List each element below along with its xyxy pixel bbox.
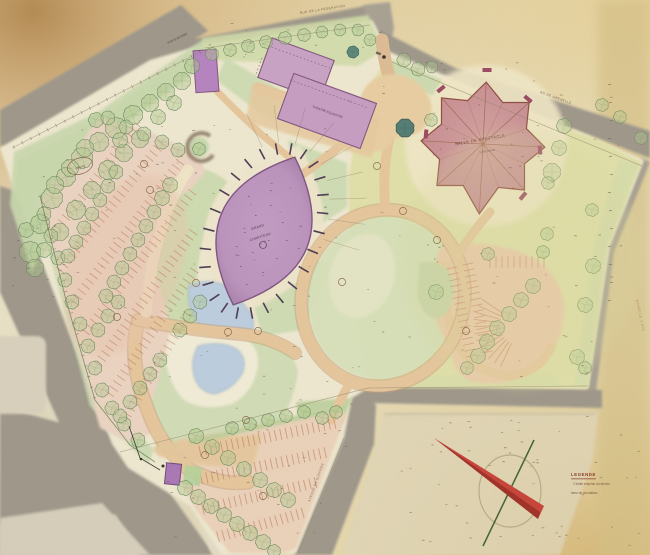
svg-text:sens de circulation: sens de circulation — [571, 491, 598, 495]
svg-text:1 limite emprise du terrain: 1 limite emprise du terrain — [573, 482, 610, 486]
svg-text:LEGENDE: LEGENDE — [571, 472, 596, 477]
